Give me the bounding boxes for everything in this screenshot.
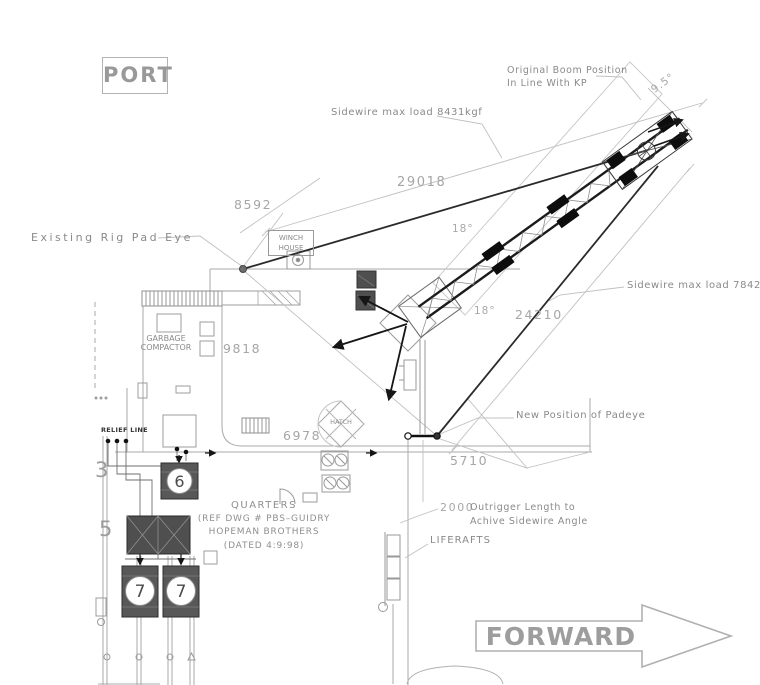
sidewires <box>240 150 659 436</box>
vent-fans <box>321 451 350 492</box>
dim-24210: 24210 <box>515 307 563 322</box>
original-boom-note-line2: In Line With KP <box>507 77 628 90</box>
equipment-number-3: 3 <box>95 458 109 482</box>
new-padeye-label: New Position of Padeye <box>516 410 645 421</box>
dim-5710: 5710 <box>450 453 488 468</box>
sidewire-angle-lower: 18° <box>474 305 496 317</box>
quarters-line4: (DATED 4:9:98) <box>172 540 356 554</box>
kingpost <box>399 340 425 434</box>
equipment-number-5: 5 <box>99 517 113 541</box>
grating-walkway <box>142 291 300 433</box>
liferafts-rack <box>379 532 401 612</box>
garbage-compactor-label: GARBAGE COMPACTOR <box>135 334 197 352</box>
ghost-boom <box>433 62 662 315</box>
dim-6978: 6978 <box>283 428 321 443</box>
dim-8592: 8592 <box>234 197 272 212</box>
pivot-guy-arrows <box>334 297 408 399</box>
pad-eye-marker <box>240 266 247 273</box>
quarters-line2: (REF DWG # PBS–GUIDRY <box>172 513 356 527</box>
sidewire-upper-label: Sidewire max load 8431kgf <box>331 107 482 118</box>
outrigger-bar <box>405 433 440 439</box>
quarters-line3: HOPEMAN BROTHERS <box>172 526 356 540</box>
sidewire-angle-upper: 18° <box>452 223 474 235</box>
liferafts-label: LIFERAFTS <box>430 535 491 546</box>
garbage-line1: GARBAGE <box>135 334 197 343</box>
forward-label: FORWARD <box>481 622 641 651</box>
crane-pedestal <box>356 271 436 351</box>
garbage-line2: COMPACTOR <box>135 343 197 352</box>
outrigger-note-line2: Achive Sidewire Angle <box>470 515 588 528</box>
hatch-label: HATCH <box>323 418 359 426</box>
outrigger-note-line1: Outrigger Length to <box>470 501 575 514</box>
deck-plan-drawing: PORT FORWARD Original Boom Position In L… <box>0 0 760 685</box>
quarters-line1: QUARTERS <box>172 499 356 513</box>
relief-line-label: RELIEF LINE <box>101 426 148 434</box>
quarters-label-block: QUARTERS (REF DWG # PBS–GUIDRY HOPEMAN B… <box>172 499 356 553</box>
port-label: PORT <box>102 57 168 94</box>
original-boom-note-line1: Original Boom Position <box>507 64 628 77</box>
existing-pad-eye-label: Existing Rig Pad Eye <box>31 231 193 244</box>
original-boom-note: Original Boom Position In Line With KP <box>507 64 628 90</box>
winch-house-label: WINCH HOUSE <box>268 230 314 256</box>
dimension-lines <box>158 62 707 558</box>
equipment-number-7-left: 7 <box>129 582 151 602</box>
winch-house-line2: HOUSE <box>269 243 313 253</box>
winch-house-line1: WINCH <box>269 233 313 243</box>
equipment-number-6: 6 <box>168 472 191 491</box>
deck-plan-linework <box>0 0 760 685</box>
dim-29018: 29018 <box>397 175 446 190</box>
dim-9818: 9818 <box>223 341 261 356</box>
equipment-number-7-right: 7 <box>170 582 192 602</box>
sidewire-lower-label: Sidewire max load 7842kgf <box>627 280 760 291</box>
